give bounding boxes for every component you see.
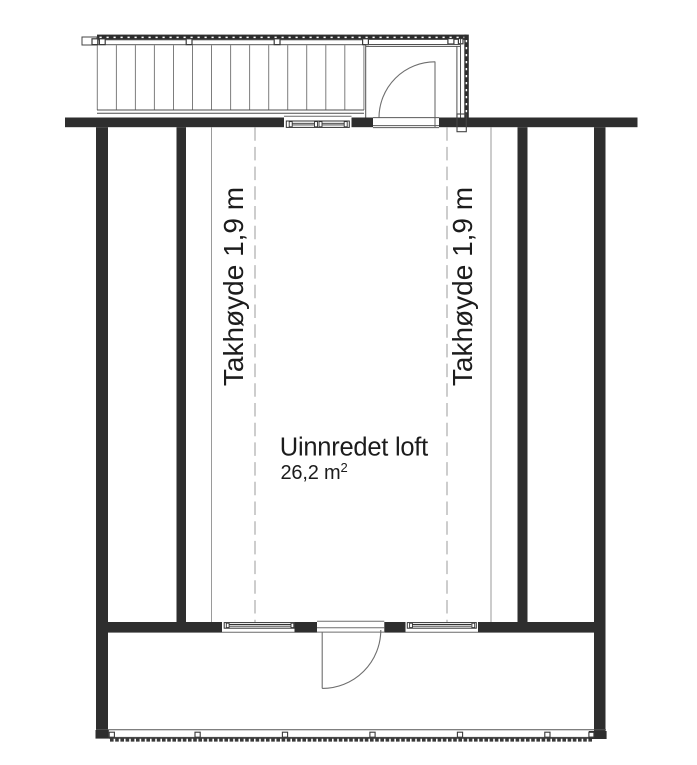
svg-text:26,2 m2: 26,2 m2 (281, 460, 348, 484)
svg-text:Takhøyde 1,9 m: Takhøyde 1,9 m (447, 187, 478, 386)
svg-text:Takhøyde 1,9 m: Takhøyde 1,9 m (218, 187, 249, 386)
svg-text:Uinnredet loft: Uinnredet loft (280, 434, 428, 462)
